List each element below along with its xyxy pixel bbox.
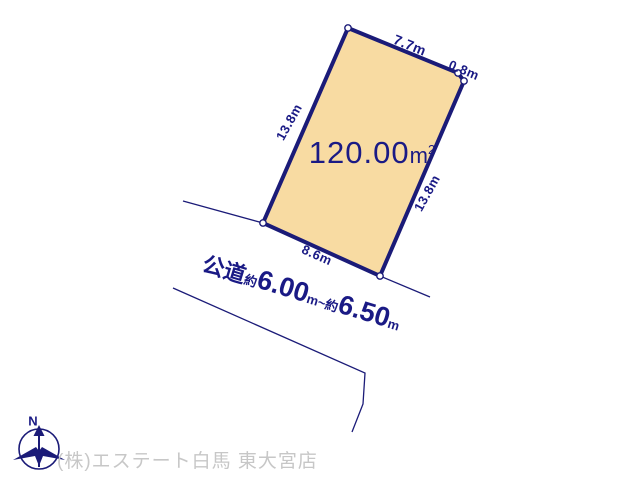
plot-diagram <box>0 0 640 480</box>
vertex-dot-top-left <box>345 25 351 31</box>
area-value: 120.00 <box>309 135 410 170</box>
compass-north-label: N <box>28 414 37 429</box>
vertex-dot-bottom-right <box>377 273 383 279</box>
area-unit: m <box>410 143 428 168</box>
company-watermark: (株)エステート白馬 東大宮店 <box>57 446 318 473</box>
road-upper-edge-right-extension <box>380 276 430 297</box>
vertex-dot-bottom-left <box>260 220 266 226</box>
area-superscript: 2 <box>428 142 435 157</box>
plot-map-canvas: 7.7m 0.8m 13.8m 13.8m 8.6m 120.00m2 公道約6… <box>0 0 640 480</box>
road-upper-edge-left-extension <box>183 201 263 223</box>
parcel-area-label: 120.00m2 <box>309 135 435 171</box>
